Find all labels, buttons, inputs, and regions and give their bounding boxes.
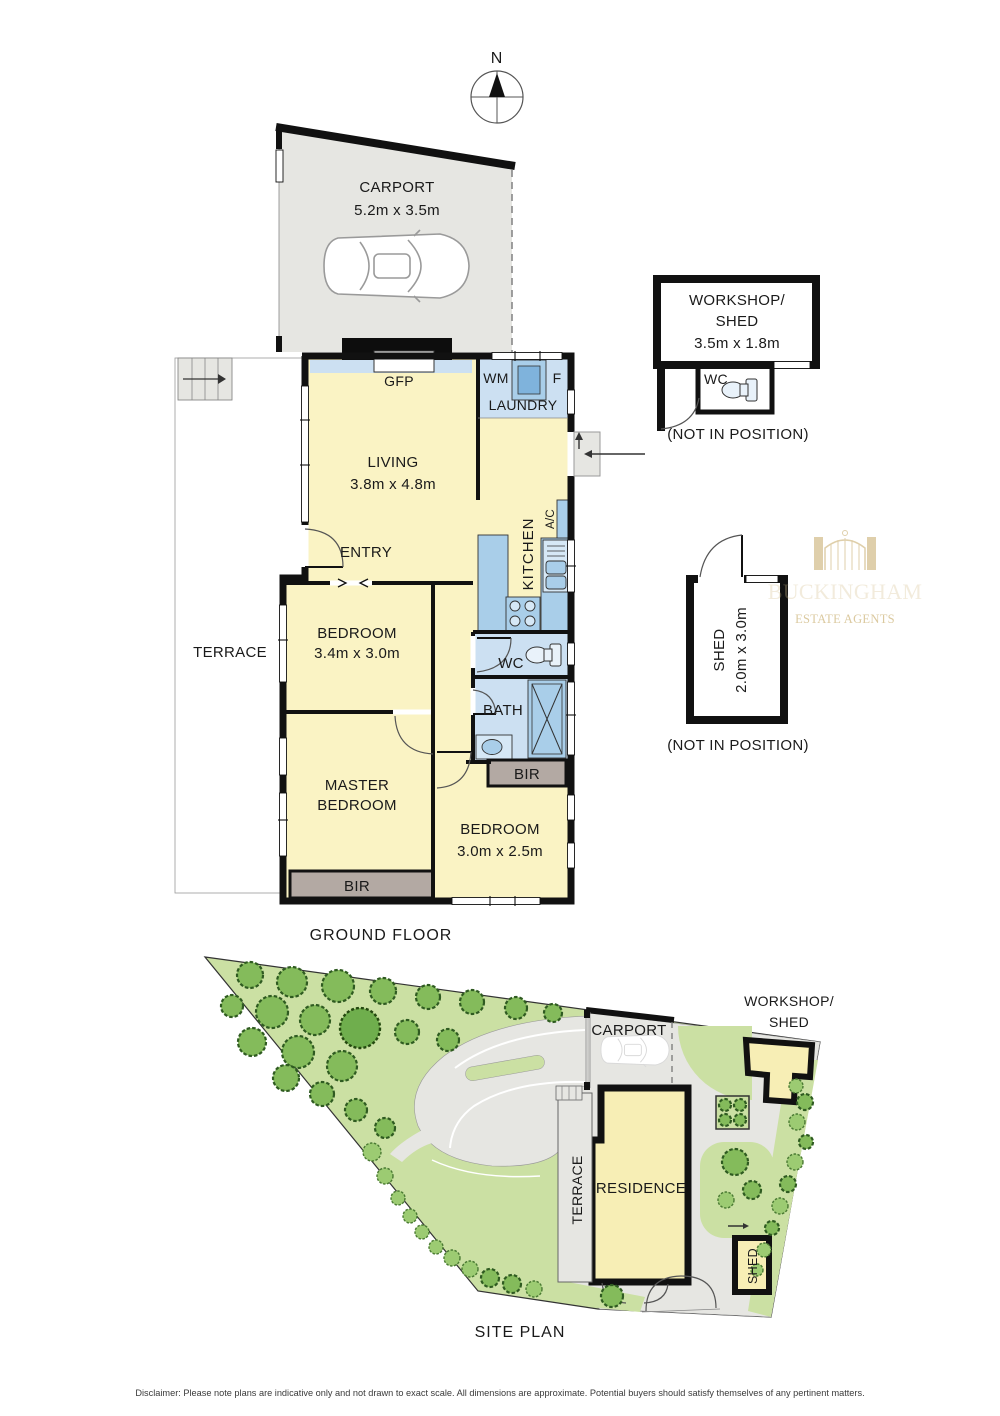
watermark-brand: BUCKINGHAM xyxy=(768,579,923,604)
site-shed-label: SHED xyxy=(746,1248,760,1284)
shed-label: SHED xyxy=(711,629,728,672)
ground-floor-title: GROUND FLOOR xyxy=(310,927,453,944)
floorplan-canvas: N CARPORT 5.2m x 3.5m TERRACE xyxy=(0,0,1000,1416)
master-line2: BEDROOM xyxy=(317,797,397,814)
workshop-dims: 3.5m x 1.8m xyxy=(694,335,780,352)
wm-label: WM xyxy=(483,370,508,386)
carport-area: CARPORT 5.2m x 3.5m xyxy=(276,127,515,352)
compass-north-label: N xyxy=(491,50,504,67)
fridge-label: F xyxy=(553,370,562,386)
workshop-wc-label: WC xyxy=(704,371,728,387)
shed-note: (NOT IN POSITION) xyxy=(667,737,809,754)
disclaimer-text: Disclaimer: Please note plans are indica… xyxy=(135,1388,864,1398)
shed-building: SHED 2.0m x 3.0m (NOT IN POSITION) xyxy=(667,535,809,754)
ac-label: A/C xyxy=(545,509,557,529)
gfp-label: GFP xyxy=(384,373,414,389)
bedroom1-label: BEDROOM xyxy=(317,625,397,642)
site-workshop-line1: WORKSHOP/ xyxy=(744,993,834,1009)
workshop-line2: SHED xyxy=(716,313,759,330)
wc-label: WC xyxy=(498,655,524,672)
site-carport-label: CARPORT xyxy=(591,1022,666,1039)
workshop-note: (NOT IN POSITION) xyxy=(667,426,809,443)
gate-logo-icon xyxy=(814,531,876,571)
shower-icon xyxy=(528,680,566,758)
master-line1: MASTER xyxy=(325,777,389,794)
shed-dims: 2.0m x 3.0m xyxy=(733,607,750,693)
kitchen-bench xyxy=(478,535,508,632)
bedroom1-dims: 3.4m x 3.0m xyxy=(314,645,400,662)
compass-icon: N xyxy=(471,50,523,123)
entry-label: ENTRY xyxy=(340,544,392,561)
site-terrace-label: TERRACE xyxy=(569,1156,585,1225)
workshop-line1: WORKSHOP/ xyxy=(689,292,786,309)
laundry-label: LAUNDRY xyxy=(489,397,558,413)
terrace-label: TERRACE xyxy=(193,644,267,661)
workshop-building: WORKSHOP/ SHED 3.5m x 1.8m WC (NOT IN PO… xyxy=(657,279,816,443)
bir-master-label: BIR xyxy=(344,878,370,895)
watermark: BUCKINGHAM ESTATE AGENTS xyxy=(768,531,923,627)
car-icon xyxy=(324,230,469,302)
kitchen-label: KITCHEN xyxy=(520,518,537,591)
site-plan: CARPORT WORKSHOP/ SHED RESIDENCE TERRACE… xyxy=(205,957,834,1317)
living-dims: 3.8m x 4.8m xyxy=(350,476,436,493)
living-label: LIVING xyxy=(368,454,419,471)
site-plan-title: SITE PLAN xyxy=(475,1324,566,1341)
bath-label: BATH xyxy=(483,702,523,719)
bedroom3-dims: 3.0m x 2.5m xyxy=(457,843,543,860)
bedroom3-label: BEDROOM xyxy=(460,821,540,838)
carport-label: CARPORT xyxy=(359,179,434,196)
site-stairs-icon xyxy=(556,1086,582,1100)
basin-icon xyxy=(476,735,512,759)
site-workshop-line2: SHED xyxy=(769,1014,809,1030)
watermark-tagline: ESTATE AGENTS xyxy=(795,612,895,626)
carport-dims: 5.2m x 3.5m xyxy=(354,202,440,219)
site-residence-label: RESIDENCE xyxy=(596,1180,686,1197)
sink-icon xyxy=(543,540,569,592)
floorplan-page: N CARPORT 5.2m x 3.5m TERRACE xyxy=(0,0,1000,1416)
side-porch xyxy=(574,432,645,476)
stairs-icon xyxy=(178,358,232,400)
bir-hall-label: BIR xyxy=(514,766,540,783)
planter-box-icon xyxy=(716,1096,749,1129)
cooktop-icon xyxy=(506,597,540,631)
